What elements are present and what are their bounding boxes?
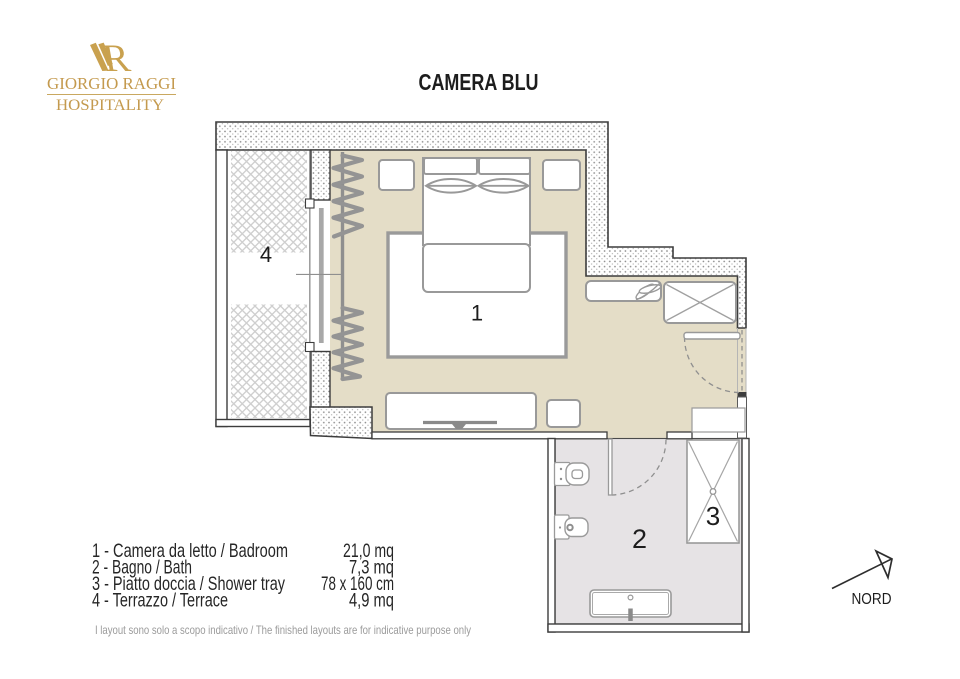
svg-text:4: 4 [260,242,272,267]
svg-text:I layout sono solo a scopo ind: I layout sono solo a scopo indicativo / … [95,623,471,637]
svg-text:2: 2 [632,524,647,554]
svg-text:4,9 mq: 4,9 mq [349,590,394,612]
svg-text:4 - Terrazzo / Terrace: 4 - Terrazzo / Terrace [92,590,228,612]
svg-text:1: 1 [471,301,483,326]
svg-text:3: 3 [706,501,720,531]
svg-text:CAMERA BLU: CAMERA BLU [419,69,539,95]
svg-text:GIORGIO RAGGI: GIORGIO RAGGI [47,74,176,93]
svg-text:NORD: NORD [852,591,892,608]
svg-text:HOSPITALITY: HOSPITALITY [56,97,164,114]
